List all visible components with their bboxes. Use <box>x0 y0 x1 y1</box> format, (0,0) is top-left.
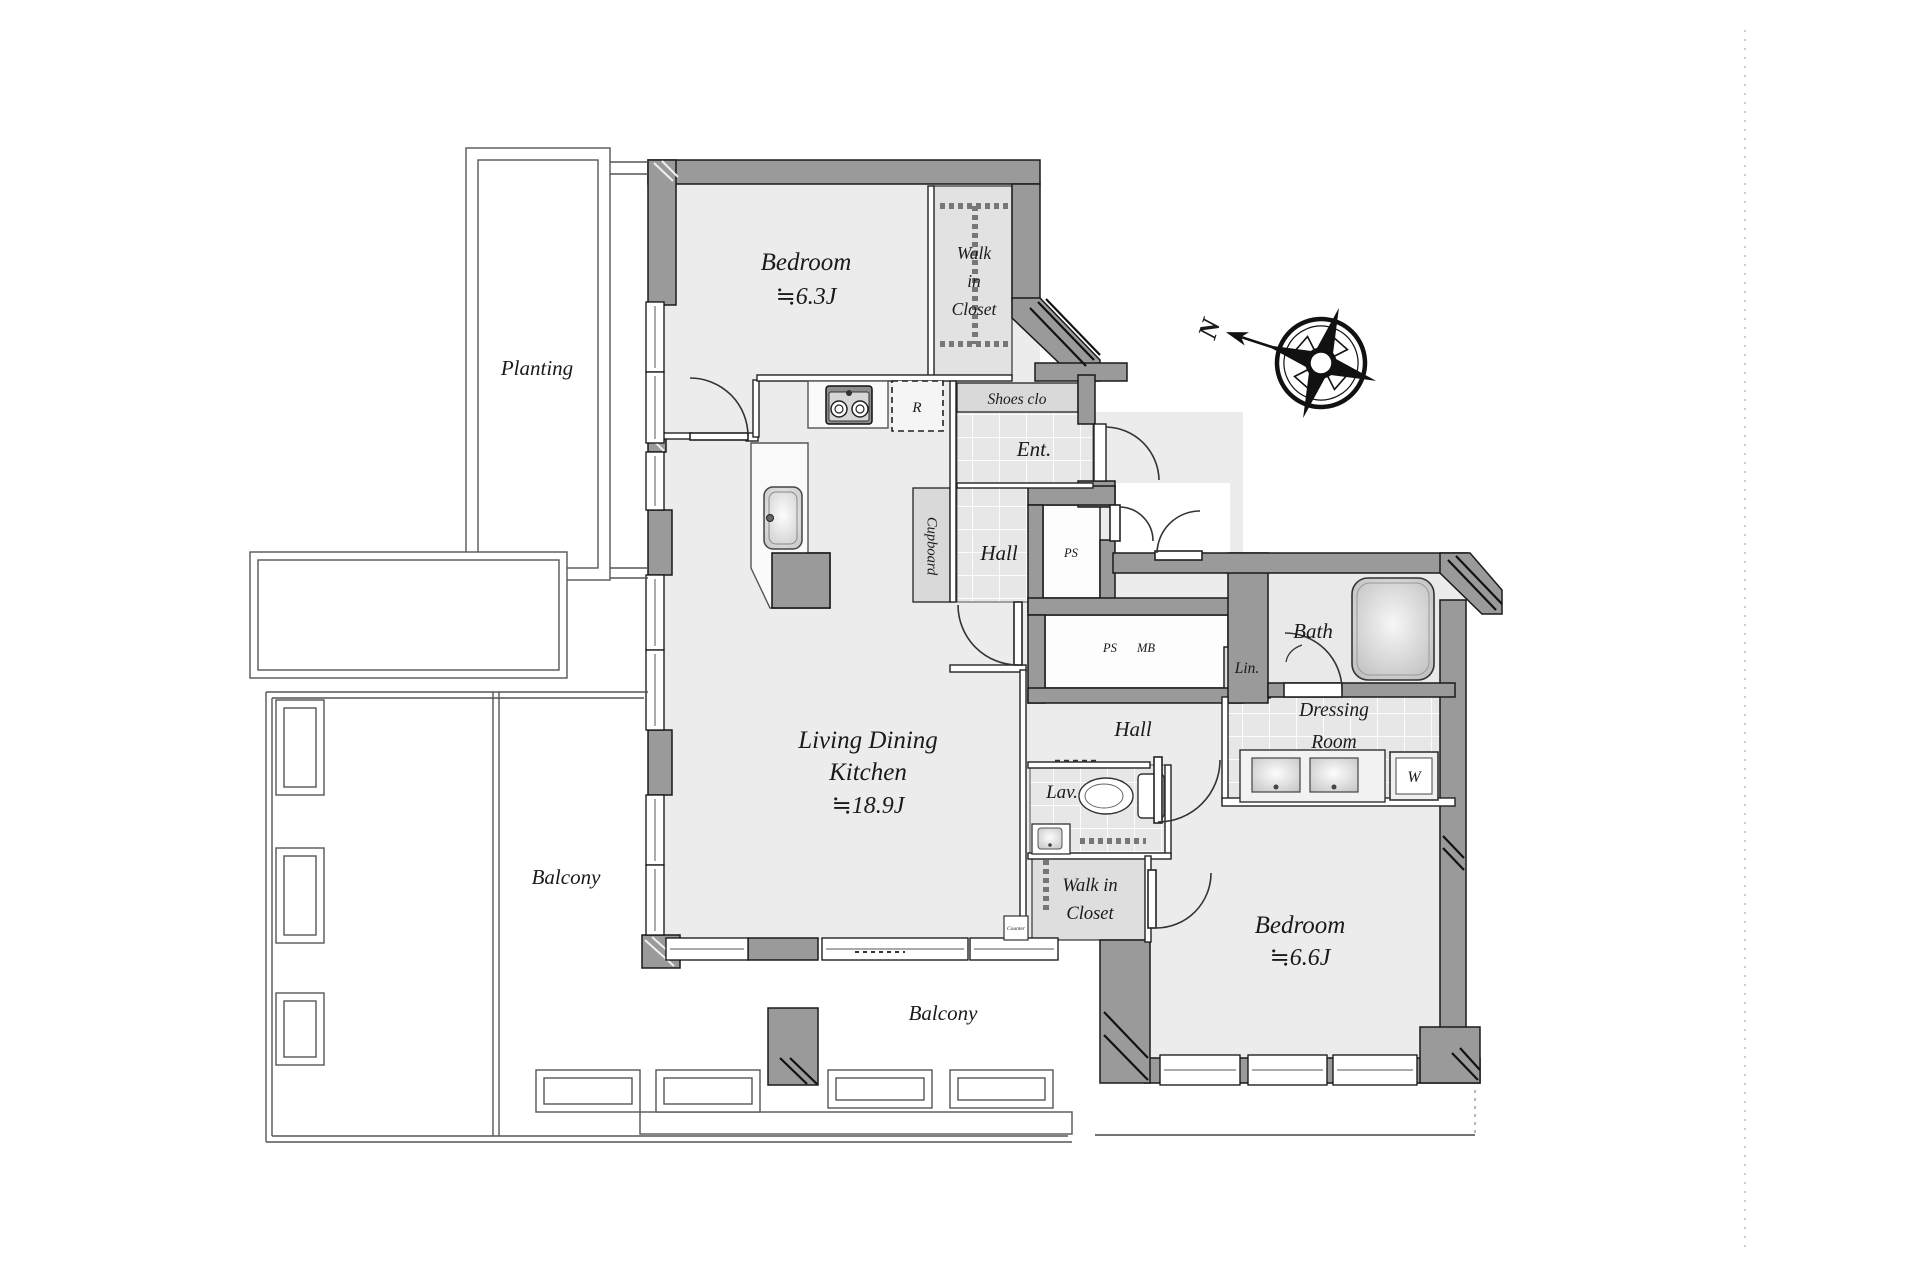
bedroom1-label: Bedroom <box>761 249 852 276</box>
left-wall-seg2 <box>648 730 672 795</box>
floorplan-page: N Planting Balcony Balcony Bedroom ≒6.3J… <box>0 0 1920 1280</box>
door-leaf <box>1155 551 1202 560</box>
door-leaf <box>1148 870 1156 928</box>
ps-top-wall <box>1028 486 1115 505</box>
entry-door-leaf <box>1094 424 1106 481</box>
hall2-label: Hall <box>1113 717 1152 741</box>
planter-box-inner <box>836 1078 924 1100</box>
counter-label: Counter <box>1007 926 1026 932</box>
ps-label: PS <box>1102 641 1118 655</box>
ps-left-wall <box>1028 505 1043 612</box>
partition-dressing-left <box>1222 697 1228 802</box>
bedroom1-size: ≒6.3J <box>776 284 838 310</box>
lavatory-label: Lav. <box>1045 782 1078 803</box>
vanity-counter <box>1240 750 1385 802</box>
dressing-label-line2: Room <box>1310 732 1357 753</box>
ldk-label-line1: Living Dining <box>797 727 938 754</box>
walk-in-closet2-floor <box>1032 856 1148 940</box>
hand-basin-icon <box>1032 824 1070 854</box>
dressing-label-line1: Dressing <box>1298 700 1369 721</box>
bath-label: Bath <box>1293 619 1333 643</box>
shoes-closet-label: Shoes clo <box>988 391 1047 408</box>
balcony-left-label: Balcony <box>532 865 601 889</box>
bedroom2-size: ≒6.6J <box>1270 945 1332 971</box>
partition-jog <box>753 380 759 437</box>
ps-upper-label: PS <box>1063 546 1079 560</box>
north-arrowhead <box>1224 325 1249 345</box>
planter-box-inner <box>664 1078 752 1104</box>
partition-lav-bedroom2 <box>1165 765 1171 856</box>
left-wall-seg1 <box>648 510 672 575</box>
stove-icon <box>826 386 872 424</box>
floorplan-drawing: N Planting Balcony Balcony Bedroom ≒6.3J… <box>0 0 1920 1280</box>
hall1-label: Hall <box>979 541 1018 565</box>
mb-label: MB <box>1136 641 1155 655</box>
ldk-size: ≒18.9J <box>832 793 906 819</box>
cupboard-label: Cupboard <box>923 517 940 575</box>
ldk-label-line2: Kitchen <box>828 759 907 786</box>
door-leaf <box>1154 757 1162 823</box>
toilet-icon <box>1079 774 1164 818</box>
planter-box-inner <box>958 1078 1045 1100</box>
outer-wall-wic-right <box>1012 184 1040 300</box>
planter-box-inner <box>284 708 316 787</box>
planting-label: Planting <box>500 356 573 380</box>
balcony-sill-band <box>640 1112 1072 1134</box>
washing-machine-label: W <box>1407 769 1422 786</box>
outer-wall-top <box>648 160 1040 184</box>
partition-ldk-hall-bottom <box>950 665 1026 672</box>
connector-top <box>610 162 648 174</box>
planter-box-inner <box>544 1078 632 1104</box>
balcony-pillar-free <box>768 1008 818 1085</box>
planter-box-inner <box>284 856 316 935</box>
outer-wall-left-upper <box>648 160 676 305</box>
bedroom2-label: Bedroom <box>1255 912 1346 939</box>
psmb-bottom-wall <box>1028 688 1243 703</box>
corner-block-se <box>1420 1027 1480 1083</box>
connector-bottom <box>610 568 648 578</box>
partition-ldk-hall <box>950 381 956 602</box>
compass-north-label: N <box>1192 313 1227 343</box>
outer-wall-right <box>1440 600 1466 1062</box>
balcony-pillar-wall <box>1100 940 1150 1083</box>
partition-bedroom1-bottom <box>757 375 1012 381</box>
partition-ldk-east <box>1020 670 1026 940</box>
partition-bedroom1-wic1 <box>928 186 934 378</box>
wic1-label-line1: Walk <box>957 243 993 263</box>
partition-ent-hall <box>957 483 1093 488</box>
door-leaf <box>1284 683 1342 697</box>
kitchen-sink-icon <box>764 487 802 549</box>
bath-left-wall <box>1228 553 1268 703</box>
wic1-label-line3: Closet <box>952 299 998 319</box>
wic2-label-line1: Walk in <box>1062 876 1117 896</box>
entrance-label: Ent. <box>1016 437 1051 461</box>
wic1-label-line2: in <box>967 271 981 291</box>
planting-lower-bed <box>250 552 567 678</box>
refrigerator-label: R <box>911 400 921 416</box>
corridor-floor <box>1115 483 1230 553</box>
linen-label: Lin. <box>1234 660 1260 677</box>
partition-hall2-lav <box>1028 762 1150 768</box>
psmb-top-wall <box>1028 598 1243 615</box>
planter-box-inner <box>284 1001 316 1057</box>
kitchen-island <box>772 553 830 608</box>
balcony-divider <box>493 692 499 1136</box>
wic2-label-line2: Closet <box>1066 904 1114 924</box>
outer-wall-entry-jamb-top <box>1078 375 1095 424</box>
door-leaf <box>1014 602 1022 665</box>
door-leaf <box>1110 505 1120 541</box>
balcony-bottom-label: Balcony <box>909 1001 978 1025</box>
bottom-wall-seg <box>748 938 818 960</box>
bathtub-icon <box>1352 578 1434 680</box>
compass-rose: N <box>1178 267 1395 436</box>
door-leaf <box>690 433 748 440</box>
